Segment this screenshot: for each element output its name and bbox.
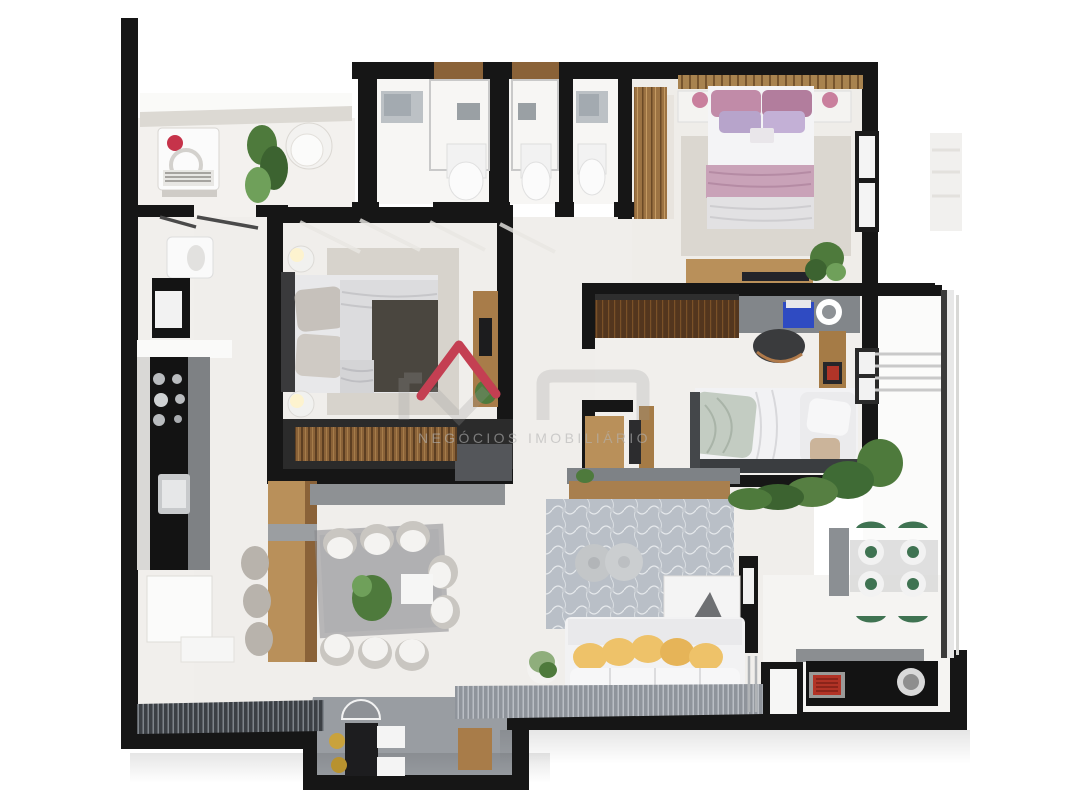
svg-text:NEGÓCIOS IMOBILIÁRIO: NEGÓCIOS IMOBILIÁRIO — [418, 430, 651, 446]
